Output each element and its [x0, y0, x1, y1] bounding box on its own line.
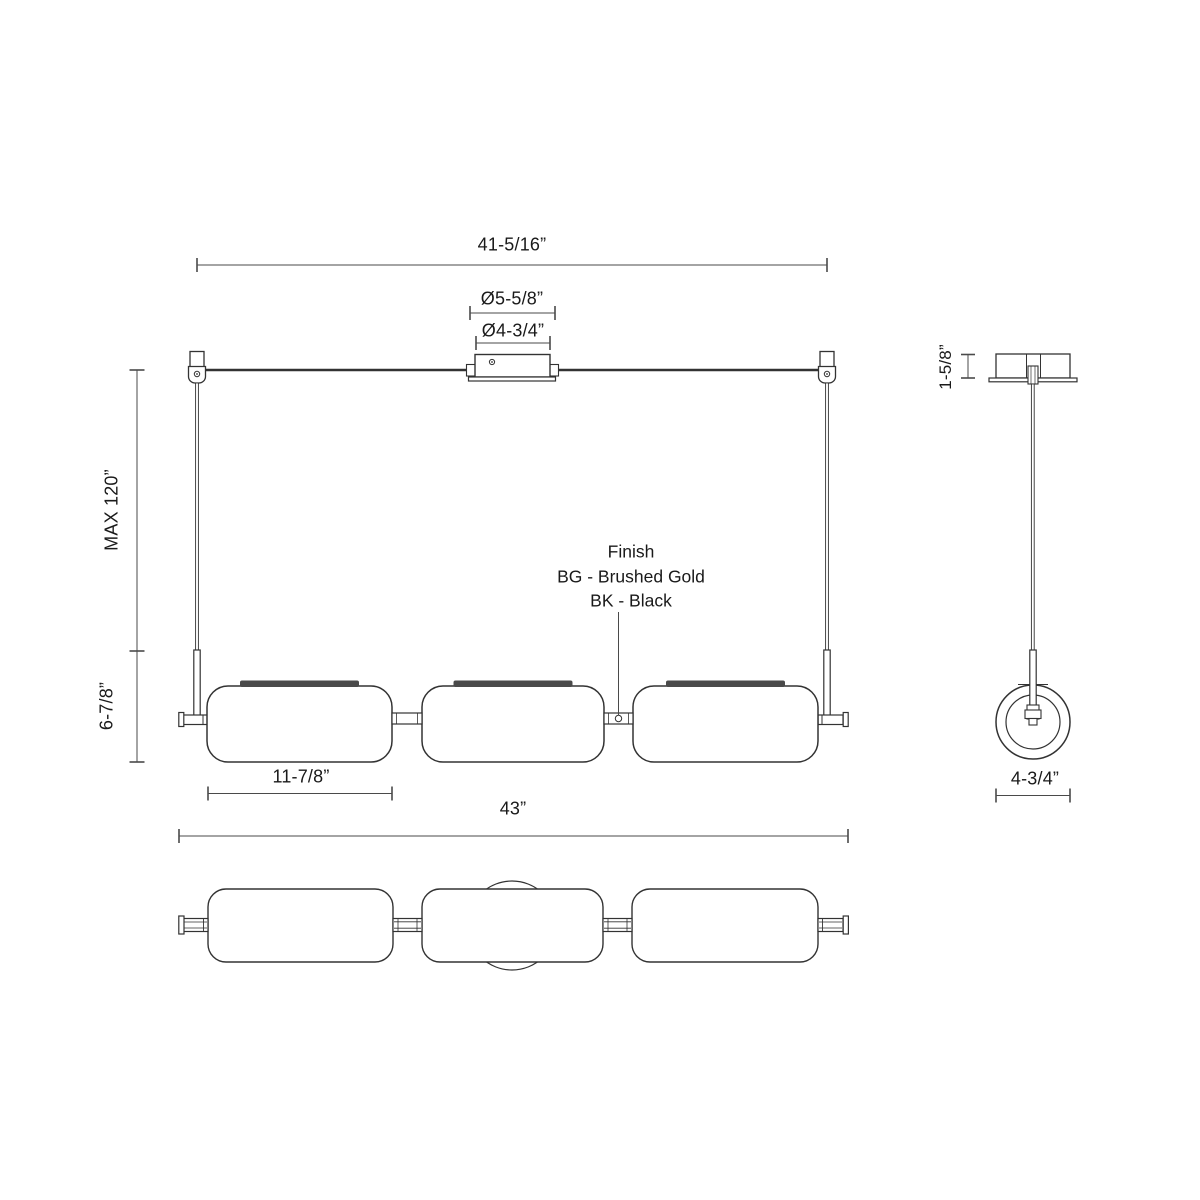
dim-suspension-width-line	[197, 258, 827, 272]
dim-fixture-height-label: 6-7/8”	[97, 682, 118, 730]
suspension-cable-side	[1031, 384, 1034, 650]
shade-3-front	[633, 686, 818, 762]
plan-end-arm-left	[179, 916, 208, 934]
dim-max-drop-label: MAX 120”	[102, 469, 123, 551]
plan-end-arm-right	[818, 916, 848, 934]
dim-overall-width-label: 43”	[500, 799, 527, 820]
suspension-cable-right	[826, 383, 829, 650]
dim-canopy-height-label: 1-5/8”	[936, 344, 956, 390]
dim-drop-lines	[130, 370, 145, 762]
dim-suspension-width-label: 41-5/16”	[478, 235, 547, 256]
front-view	[130, 258, 849, 843]
shade-top-caps	[240, 681, 785, 688]
shade-3-plan	[632, 889, 818, 962]
cable-gripper-right	[819, 352, 836, 384]
dim-fixture-diameter-line	[996, 789, 1070, 803]
cable-gripper-left	[189, 352, 206, 384]
dim-shade-width-line	[208, 787, 392, 801]
shade-2-front	[422, 686, 604, 762]
dim-canopy-inner-label: Ø4-3/4”	[482, 321, 544, 342]
plan-connector-1	[393, 919, 422, 932]
dim-canopy-height-line	[961, 355, 975, 379]
plan-connector-2	[603, 919, 632, 932]
dim-overall-width-line	[179, 829, 848, 843]
end-arm-right	[818, 713, 848, 727]
stem-right	[824, 650, 830, 716]
dim-canopy-outer-label: Ø5-5/8”	[481, 289, 543, 310]
shade-1-plan	[208, 889, 393, 962]
canopy-front	[467, 355, 559, 382]
spec-drawing-canvas: 41-5/16” Ø5-5/8” Ø4-3/4” MAX 120” 6-7/8”…	[0, 0, 1200, 1200]
suspension-cable-left	[196, 383, 199, 650]
plan-view	[179, 881, 849, 970]
stem-left	[194, 650, 200, 716]
dim-shade-width-label: 11-7/8”	[272, 767, 329, 788]
shade-2-plan	[422, 889, 603, 962]
finish-note: Finish BG - Brushed Gold BK - Black	[557, 539, 705, 613]
side-view	[961, 354, 1077, 803]
end-arm-left	[179, 713, 208, 727]
finish-option-bk: BK - Black	[557, 588, 705, 613]
finish-heading: Finish	[557, 539, 705, 564]
shade-connector-1	[392, 713, 422, 724]
canopy-side	[989, 354, 1077, 384]
finish-option-bg: BG - Brushed Gold	[557, 564, 705, 589]
dim-fixture-diameter-label: 4-3/4”	[1011, 769, 1059, 790]
shade-1-front	[207, 686, 392, 762]
